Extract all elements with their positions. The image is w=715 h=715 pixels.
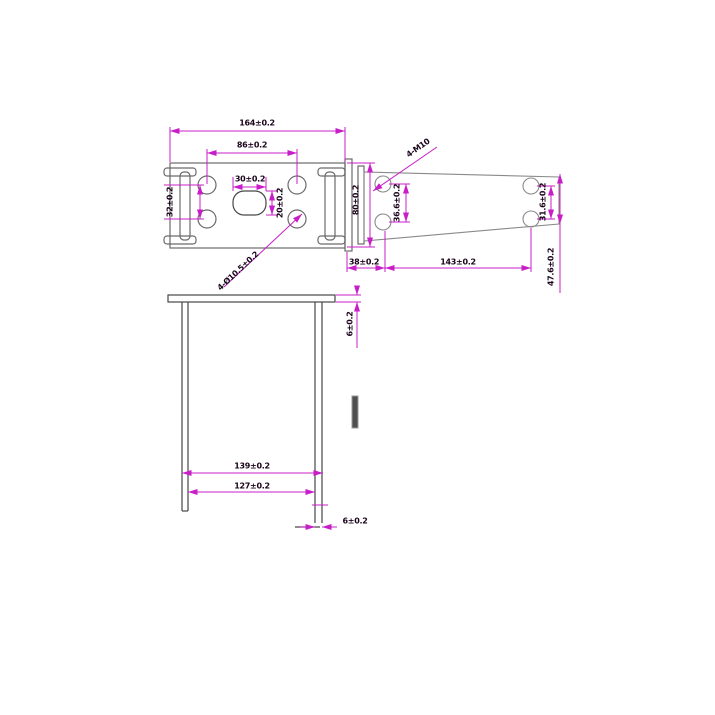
dim-slot-width: 30±0.2 bbox=[235, 175, 265, 184]
dim-end-height: 47.6±0.2 bbox=[547, 248, 556, 286]
section-mark bbox=[352, 396, 358, 428]
dim-right-hole-pitch: 31.6±0.2 bbox=[539, 183, 548, 221]
dim-overall-width: 164±0.2 bbox=[239, 119, 274, 128]
dim-hole-pitch-vertical: 32±0.2 bbox=[166, 187, 175, 217]
dim-left-hole-pitch: 36.6±0.2 bbox=[393, 184, 402, 222]
dimension-lines bbox=[164, 127, 560, 527]
dim-hole-span: 143±0.2 bbox=[440, 258, 475, 267]
center-slot bbox=[233, 191, 266, 215]
drawing-canvas bbox=[0, 0, 715, 715]
dim-bracket-height: 80±0.2 bbox=[352, 185, 361, 215]
dim-leg-thickness: 6±0.2 bbox=[343, 517, 368, 526]
dim-slot-height: 20±0.2 bbox=[276, 188, 285, 218]
dim-inner-leg-span: 127±0.2 bbox=[234, 482, 269, 491]
dim-bracket-to-hole: 38±0.2 bbox=[349, 258, 379, 267]
dim-plate-thickness: 6±0.2 bbox=[346, 312, 355, 337]
drawing-sheet: 164±0.2 86±0.2 30±0.2 20±0.2 32±0.2 4-Ø1… bbox=[0, 0, 715, 715]
dim-hole-pitch: 86±0.2 bbox=[237, 141, 267, 150]
mounting-holes bbox=[198, 176, 306, 228]
dim-outer-leg-span: 139±0.2 bbox=[234, 462, 269, 471]
